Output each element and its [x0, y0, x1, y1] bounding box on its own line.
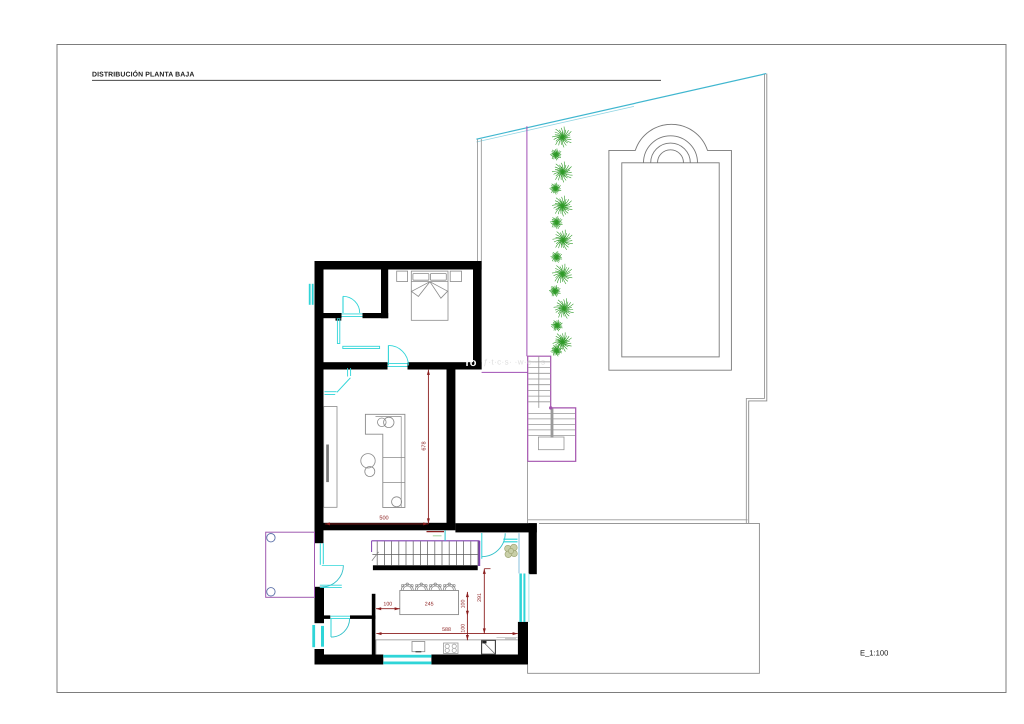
svg-text:678: 678	[422, 441, 428, 450]
svg-text:100: 100	[460, 624, 466, 633]
svg-text:100: 100	[383, 601, 392, 607]
svg-text:ro: ro	[466, 357, 477, 369]
svg-text:245: 245	[425, 601, 434, 607]
svg-text:ƒ·t·c·s· ·w·е·-·s: ƒ·t·c·s· ·w·е·-·s	[484, 358, 546, 367]
svg-text:500: 500	[379, 515, 388, 521]
svg-text:100: 100	[460, 600, 466, 609]
svg-text:291: 291	[477, 593, 483, 602]
svg-text:DISTRIBUCIÓN PLANTA BAJA: DISTRIBUCIÓN PLANTA BAJA	[92, 69, 194, 78]
svg-text:E_1:100: E_1:100	[860, 649, 888, 658]
svg-text:588: 588	[442, 627, 451, 633]
